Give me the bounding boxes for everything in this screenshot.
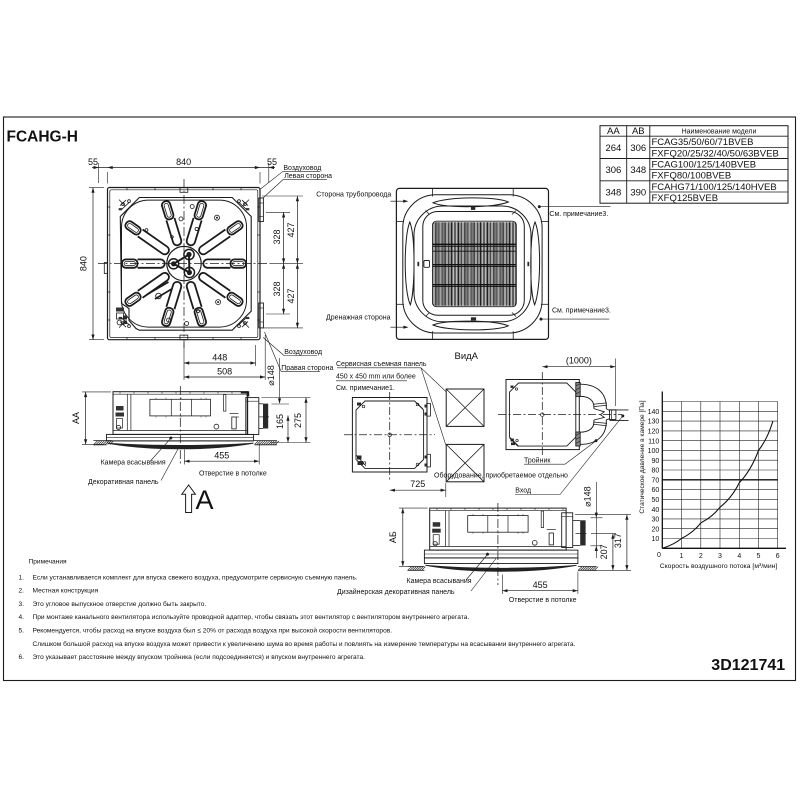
svg-text:Правая сторона: Правая сторона: [281, 365, 333, 372]
svg-text:4.: 4.: [19, 614, 25, 621]
svg-text:4: 4: [737, 553, 741, 560]
svg-text:100: 100: [648, 448, 660, 455]
svg-text:Слишком большой расход на впус: Слишком большой расход на впуске воздуха…: [33, 640, 576, 648]
svg-text:140: 140: [648, 409, 660, 416]
svg-text:390: 390: [630, 187, 646, 198]
svg-text:FCAHG71/100/125/140HVEB: FCAHG71/100/125/140HVEB: [652, 182, 777, 193]
svg-text:Статическое давление в камере: Статическое давление в камере [Па]: [639, 400, 646, 513]
svg-text:(1000): (1000): [566, 355, 592, 365]
svg-text:AA: AA: [71, 412, 81, 424]
svg-text:Это угловое выпускное отверсти: Это угловое выпускное отверстие должно б…: [33, 600, 207, 608]
svg-text:ВидА: ВидА: [455, 351, 479, 362]
svg-text:20: 20: [652, 526, 660, 533]
svg-text:348: 348: [605, 187, 621, 198]
svg-text:Камера всасывания: Камера всасывания: [407, 578, 472, 585]
svg-text:Скорость воздушного потока [м³: Скорость воздушного потока [м³/мин]: [660, 563, 778, 570]
svg-text:840: 840: [176, 157, 191, 167]
svg-text:5.: 5.: [19, 628, 25, 635]
svg-text:Вход: Вход: [515, 488, 531, 495]
svg-text:306: 306: [605, 165, 621, 176]
svg-text:80: 80: [652, 468, 660, 475]
svg-text:AB: AB: [632, 126, 645, 137]
svg-text:840: 840: [79, 256, 89, 271]
svg-text:2.: 2.: [19, 588, 25, 595]
svg-text:3D121741: 3D121741: [711, 657, 785, 674]
svg-text:130: 130: [648, 419, 660, 426]
svg-text:306: 306: [630, 143, 646, 154]
svg-text:FCAHG-H: FCAHG-H: [7, 129, 78, 146]
svg-text:См. примечание1.: См. примечание1.: [336, 385, 395, 392]
svg-text:Сервисная съемная панель: Сервисная съемная панель: [336, 361, 427, 368]
svg-text:FCAG35/50/60/71BVEB: FCAG35/50/60/71BVEB: [652, 137, 754, 148]
svg-text:⌀148: ⌀148: [266, 365, 276, 385]
svg-text:Декоративная панель: Декоративная панель: [88, 479, 159, 486]
svg-text:См. примечание3.: См. примечание3.: [549, 211, 608, 218]
svg-text:6.: 6.: [19, 654, 25, 661]
svg-text:FXFQ80/100BVEB: FXFQ80/100BVEB: [652, 171, 732, 182]
svg-text:448: 448: [212, 353, 227, 363]
svg-text:348: 348: [630, 165, 646, 176]
svg-text:427: 427: [286, 222, 296, 237]
svg-text:Дренажная сторона: Дренажная сторона: [326, 315, 391, 322]
svg-text:Сторона трубопровода: Сторона трубопровода: [316, 191, 391, 199]
svg-text:427: 427: [286, 288, 296, 303]
svg-text:264: 264: [605, 143, 621, 154]
svg-text:Камера всасывания: Камера всасывания: [101, 460, 166, 467]
svg-text:120: 120: [648, 429, 660, 436]
svg-text:207: 207: [599, 544, 609, 559]
svg-text:Оборудование, приобретаемое от: Оборудование, приобретаемое отдельно: [434, 471, 568, 479]
svg-text:70: 70: [652, 477, 660, 484]
svg-text:Воздуховод: Воздуховод: [284, 349, 322, 356]
svg-text:1: 1: [680, 553, 684, 560]
svg-text:FCAG100/125/140BVEB: FCAG100/125/140BVEB: [652, 159, 757, 170]
svg-text:Наименование модели: Наименование модели: [682, 129, 757, 136]
svg-text:317: 317: [613, 533, 623, 548]
svg-text:6: 6: [776, 553, 780, 560]
svg-text:2: 2: [699, 553, 703, 560]
svg-text:455: 455: [533, 580, 548, 590]
svg-text:508: 508: [217, 367, 232, 377]
svg-text:50: 50: [652, 497, 660, 504]
svg-text:55: 55: [88, 157, 98, 167]
svg-text:Это указывает расстояние между: Это указывает расстояние между впуском т…: [33, 653, 366, 661]
svg-text:90: 90: [652, 458, 660, 465]
svg-text:Рекомендуется, чтобы расход на: Рекомендуется, чтобы расход на впуске во…: [33, 627, 393, 635]
svg-text:Отверстие в потолке: Отверстие в потолке: [509, 597, 577, 604]
svg-text:328: 328: [272, 281, 282, 296]
svg-text:FXFQ20/25/32/40/50/63BVEB: FXFQ20/25/32/40/50/63BVEB: [652, 148, 779, 159]
svg-text:450 x 450 mm или более: 450 x 450 mm или более: [336, 373, 416, 381]
svg-text:1.: 1.: [19, 574, 25, 581]
svg-text:165: 165: [275, 414, 285, 429]
svg-text:A: A: [196, 485, 214, 515]
svg-text:725: 725: [410, 479, 425, 489]
svg-text:См. примечание3.: См. примечание3.: [552, 308, 611, 315]
svg-text:10: 10: [652, 536, 660, 543]
svg-text:328: 328: [272, 229, 282, 244]
svg-text:При монтаже канального вентиля: При монтаже канального вентилятора испол…: [33, 613, 470, 621]
svg-text:55: 55: [267, 157, 277, 167]
svg-text:Отверстие в потолке: Отверстие в потолке: [199, 471, 267, 478]
svg-text:АБ: АБ: [388, 531, 398, 543]
svg-text:FXFQ125BVEB: FXFQ125BVEB: [652, 193, 719, 204]
svg-text:Дизайнерская декоративная пане: Дизайнерская декоративная панель: [337, 588, 455, 596]
svg-text:Воздуховод: Воздуховод: [283, 165, 321, 172]
svg-text:110: 110: [648, 438, 659, 445]
svg-text:Тройник: Тройник: [524, 456, 551, 464]
svg-text:AA: AA: [607, 126, 620, 137]
svg-text:3.: 3.: [19, 601, 25, 608]
svg-text:40: 40: [652, 507, 660, 514]
svg-text:⌀148: ⌀148: [583, 486, 593, 506]
svg-text:3: 3: [718, 553, 722, 560]
svg-text:0: 0: [657, 552, 661, 559]
svg-text:Местная конструкция: Местная конструкция: [33, 588, 99, 595]
svg-text:455: 455: [214, 451, 229, 461]
svg-text:Левая сторона: Левая сторона: [284, 173, 332, 180]
svg-text:60: 60: [652, 487, 660, 494]
svg-text:30: 30: [652, 517, 660, 524]
svg-text:5: 5: [757, 553, 761, 560]
svg-text:275: 275: [293, 413, 303, 428]
svg-text:Если устанавливается комплект: Если устанавливается комплект для впуска…: [33, 574, 358, 581]
svg-text:Примечания: Примечания: [29, 559, 67, 566]
